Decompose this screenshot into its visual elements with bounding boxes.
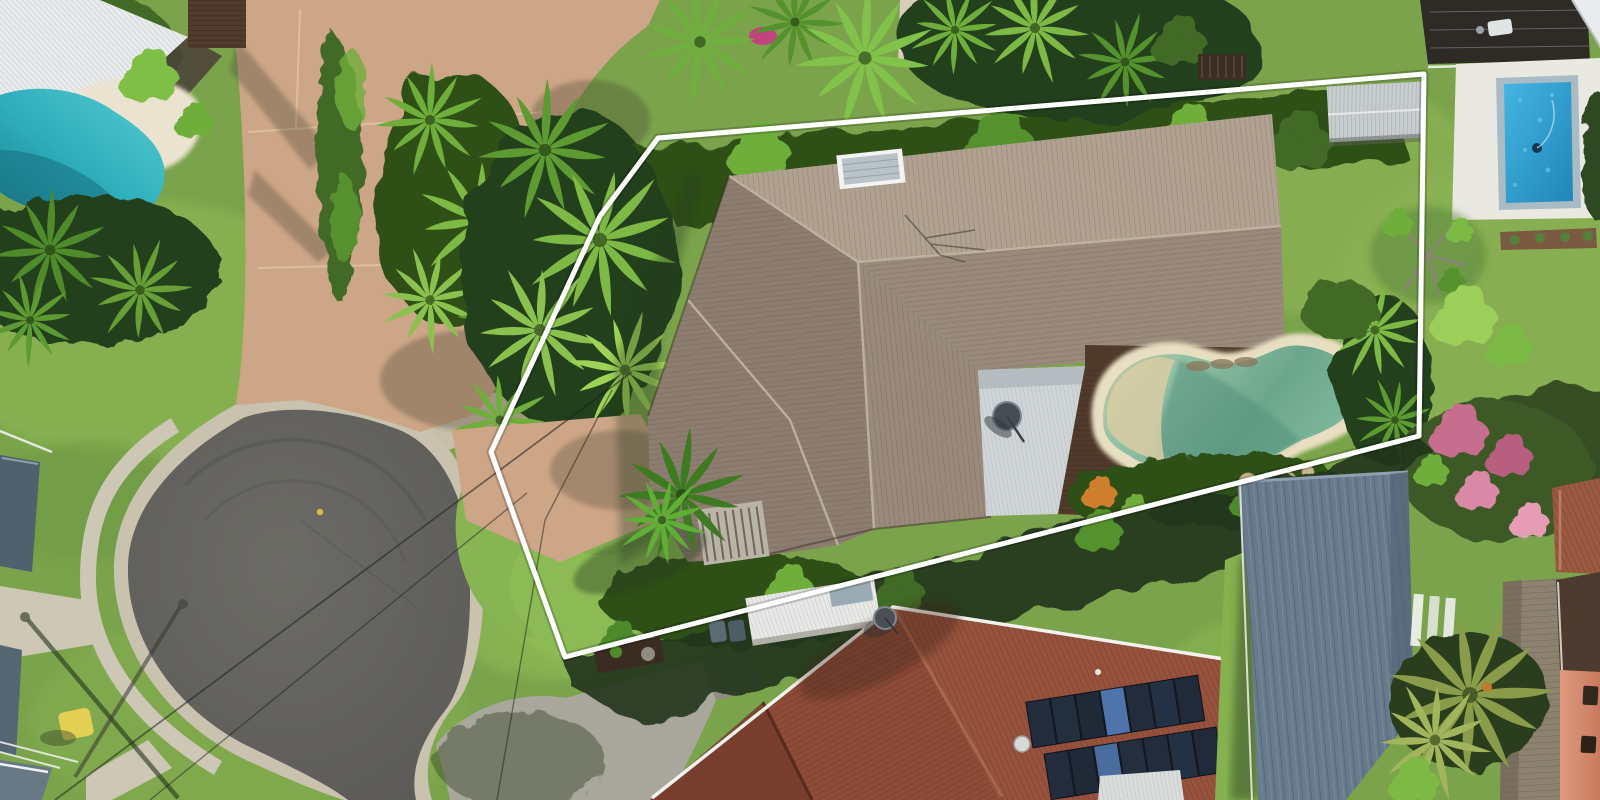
blue-pool-area [1452, 58, 1600, 220]
orange-wall-house [1556, 572, 1600, 800]
terracotta-roof-east [1552, 478, 1600, 574]
window-upper [1582, 686, 1598, 706]
aerial-photo-canvas [0, 0, 1600, 800]
road-marker-dot [317, 509, 323, 515]
garden-shed [1327, 81, 1426, 146]
trellis [696, 501, 769, 566]
aerial-photo [0, 0, 1600, 800]
rooftop-deck [1420, 0, 1590, 64]
roof-vent-small [1095, 669, 1101, 675]
roof-vent-white [1014, 736, 1030, 752]
window-lower [1581, 736, 1597, 754]
skylight [836, 149, 905, 190]
timber-pergola-slats [1198, 54, 1246, 80]
